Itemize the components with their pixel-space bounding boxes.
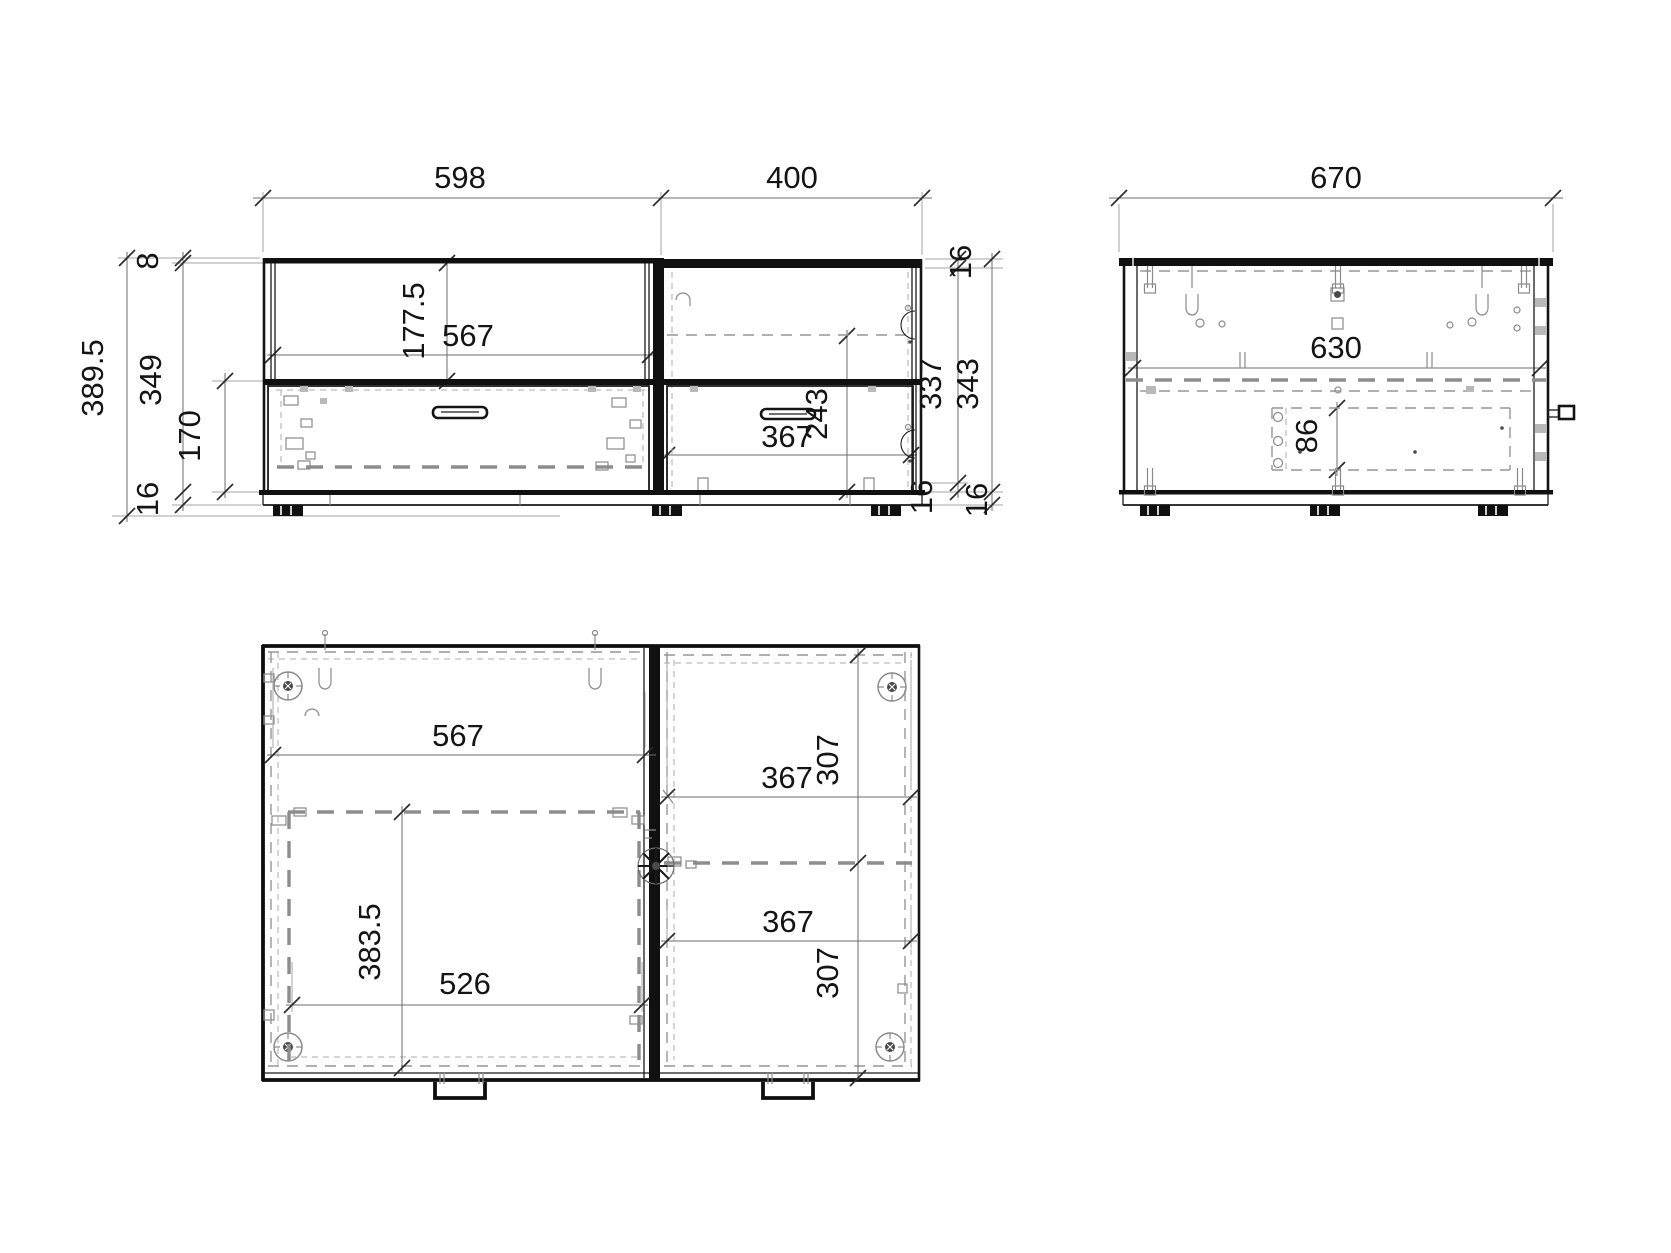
front-left-drawer-hardware [284,386,641,470]
back-foot-right [1478,505,1508,516]
dim-back-total-width: 670 [1310,160,1362,195]
furniture-dimension-drawing: 598 400 8 389.5 349 170 16 177.5 567 16 … [0,0,1671,1253]
technical-drawing-page: 598 400 8 389.5 349 170 16 177.5 567 16 … [0,0,1671,1253]
front-dimension-ticks [119,190,1000,524]
back-view: 670 630 86 [1109,160,1574,516]
plan-foot-tab-right [763,1082,813,1098]
dim-plan-bottom-depth: 307 [810,947,845,999]
cam-lock-plan-top-right [878,673,906,701]
dim-front-plinth-left: 16 [130,482,165,516]
front-foot-left [273,505,303,516]
front-cabinet-left-unit [263,258,661,492]
front-center-divider [653,258,664,492]
dim-front-shelf-height: 177.5 [396,282,431,360]
back-extension-lines [1119,204,1553,252]
plan-foot-tabs [435,1072,813,1098]
dim-plan-inner-left: 567 [432,718,484,753]
dim-plan-drawer-depth: 383.5 [352,903,387,981]
back-feet [1140,505,1508,516]
dim-plan-top-width: 367 [761,760,813,795]
front-dimension-lines [127,198,992,522]
hinge-clip-plan-1 [319,668,331,689]
dim-front-width-left: 598 [434,160,486,195]
dim-front-plinth-right-b: 16 [959,483,994,517]
hinge-symbol-top [901,305,915,343]
front-right-hardware [676,293,876,490]
dim-front-width-right: 400 [766,160,818,195]
plan-foot-tab-left [435,1082,485,1098]
dim-plan-bottom-width: 367 [762,904,814,939]
front-extension-lines [112,192,1003,516]
plan-right-unit [638,652,912,1070]
plan-left-unit [264,631,656,1069]
plan-view: 567 383.5 526 367 307 367 307 [262,631,920,1099]
front-foot-right [871,505,901,516]
dim-back-hw-height: 86 [1289,419,1324,453]
front-foot-center [652,505,682,516]
cam-lock-plan-bottom-right [876,1033,904,1061]
back-foot-center [1310,505,1340,516]
dim-back-inner-width: 630 [1310,330,1362,365]
dim-front-top-panel: 8 [130,252,165,269]
dim-front-drawer-height: 170 [172,410,207,462]
front-cabinet-right-unit [661,259,922,492]
dim-front-body-height: 349 [133,354,168,406]
hinge-clip-plan-2 [589,668,601,689]
dim-front-top-right-16: 16 [943,245,978,279]
front-view: 598 400 8 389.5 349 170 16 177.5 567 16 … [75,160,1003,524]
cam-lock-plan-top-left [274,672,302,700]
front-base [259,490,925,516]
back-knob [1548,406,1574,419]
dim-front-section-right: 343 [950,358,985,410]
front-left-drawer-handle [433,407,487,418]
dim-plan-top-depth: 307 [810,734,845,786]
dim-front-shelf-width: 567 [442,318,494,353]
plan-dimension-ticks [265,647,919,1086]
dim-front-total-height: 389.5 [75,339,110,417]
back-foot-left [1140,505,1170,516]
dim-plan-drawer-width: 526 [439,966,491,1001]
